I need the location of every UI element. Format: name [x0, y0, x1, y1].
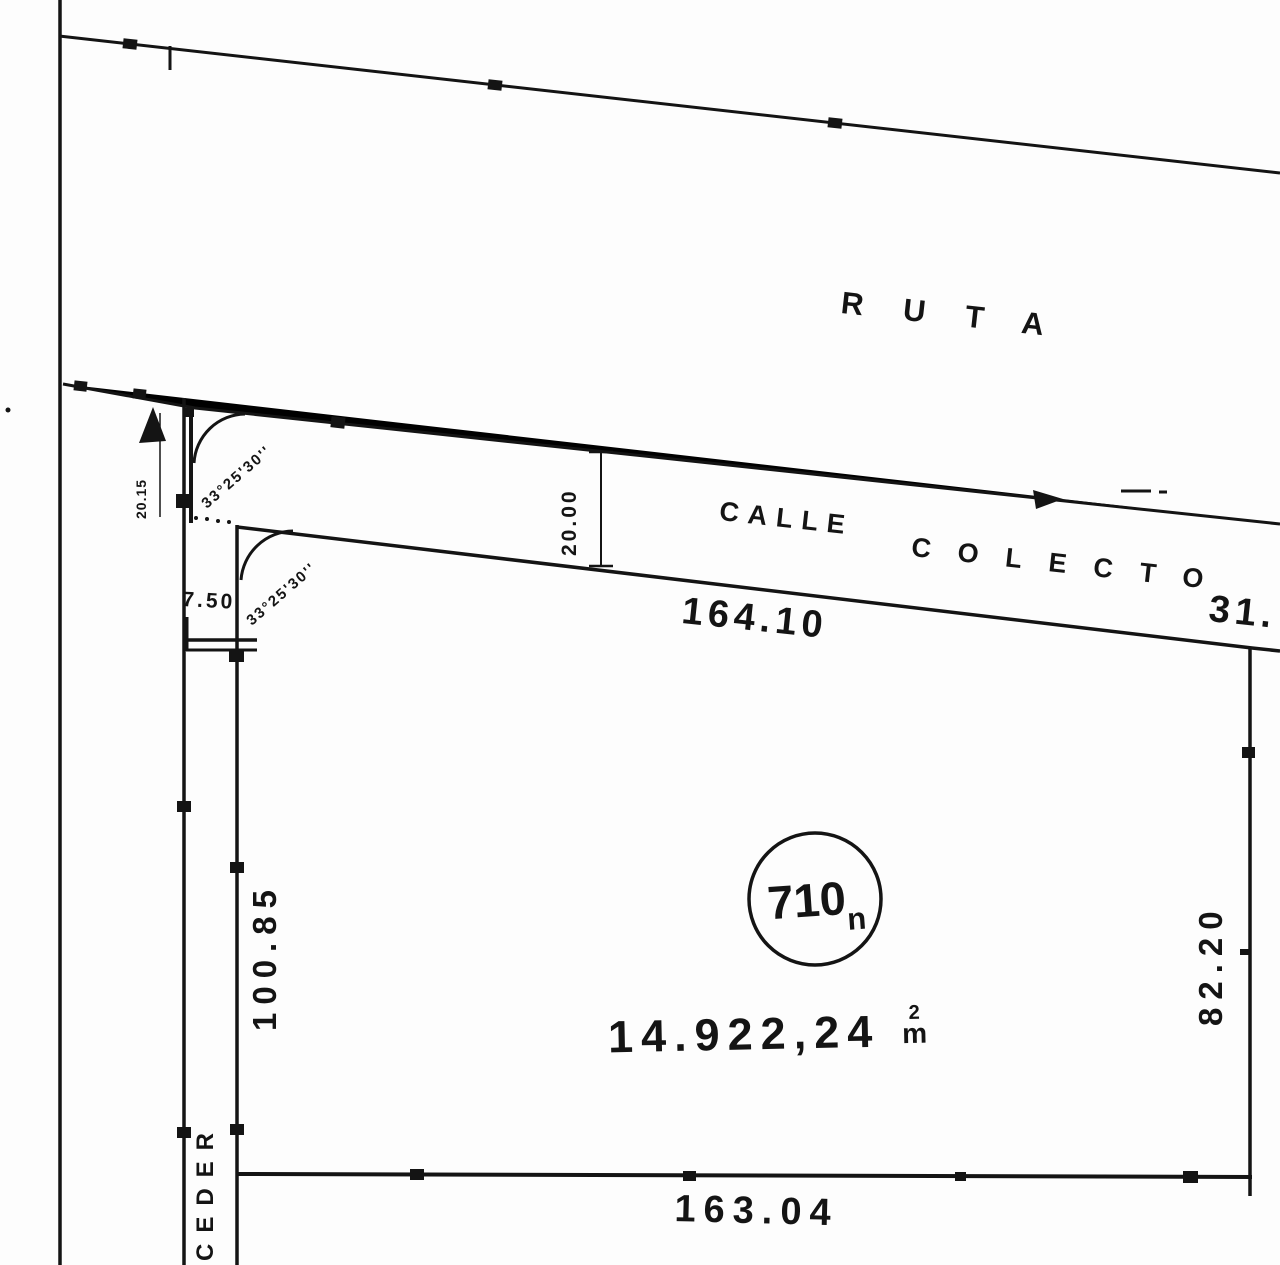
east-side-dimension: 82.20: [1194, 903, 1227, 1026]
survey-tick: [132, 388, 146, 399]
survey-tick: [410, 1169, 424, 1180]
parcel-number: 710: [766, 869, 848, 929]
survey-tick: [185, 408, 194, 417]
parcel-area-value: 14.922,24: [607, 1006, 880, 1064]
street-width-corner-dimension: 20.15: [134, 479, 148, 519]
north-arrowhead: [139, 407, 166, 443]
survey-tick: [955, 1172, 966, 1181]
parcel-rear-line: [236, 1174, 1252, 1177]
cede-strip-label: CEDER: [194, 1122, 218, 1261]
parcel-number-label: 710 n: [747, 859, 886, 938]
survey-tick: [230, 862, 244, 873]
parcel-area-label: 14.922,24 2 m: [607, 1005, 927, 1064]
frontage-right-dimension: 31.: [1207, 590, 1278, 635]
square-meters-unit: 2 m: [902, 1004, 928, 1045]
survey-tick: [176, 494, 193, 508]
survey-plan-sheet: RUTA CALLE COLECTO 164.10 31. 163.04 100…: [0, 0, 1280, 1265]
street-width-dimension: 20.00: [559, 488, 580, 556]
survey-tick: [122, 38, 137, 49]
survey-tick: [1183, 1171, 1198, 1183]
survey-tick: [229, 650, 244, 662]
dotted-tie-line: [194, 516, 198, 520]
west-side-dimension: 100.85: [248, 882, 281, 1031]
rear-dimension: 163.04: [674, 1190, 839, 1232]
survey-tick: [177, 1127, 191, 1138]
plan-linework: [0, 0, 1280, 1265]
survey-tick: [177, 801, 191, 812]
survey-tick: [1240, 949, 1250, 955]
street-north-edge-line: [63, 384, 1280, 524]
angle-arc-lower: [241, 531, 293, 580]
survey-tick: [1242, 747, 1255, 758]
route-north-edge-line: [59, 36, 1280, 173]
direction-arrowhead: [1033, 490, 1063, 509]
angle-arc-upper: [194, 414, 245, 463]
unit-base: m: [902, 1021, 927, 1045]
stray-ink-dot: [6, 408, 11, 413]
dotted-tie-line: [216, 519, 220, 523]
survey-tick: [230, 1124, 244, 1135]
survey-tick: [73, 380, 87, 391]
parcel-number-suffix: n: [846, 901, 867, 938]
survey-tick: [683, 1171, 696, 1181]
survey-tick: [827, 117, 842, 128]
dotted-tie-line: [227, 520, 231, 524]
cede-strip-width-dimension: 7.50: [182, 589, 236, 613]
survey-tick: [330, 416, 345, 428]
dotted-tie-line: [205, 517, 209, 521]
survey-tick: [487, 79, 502, 90]
